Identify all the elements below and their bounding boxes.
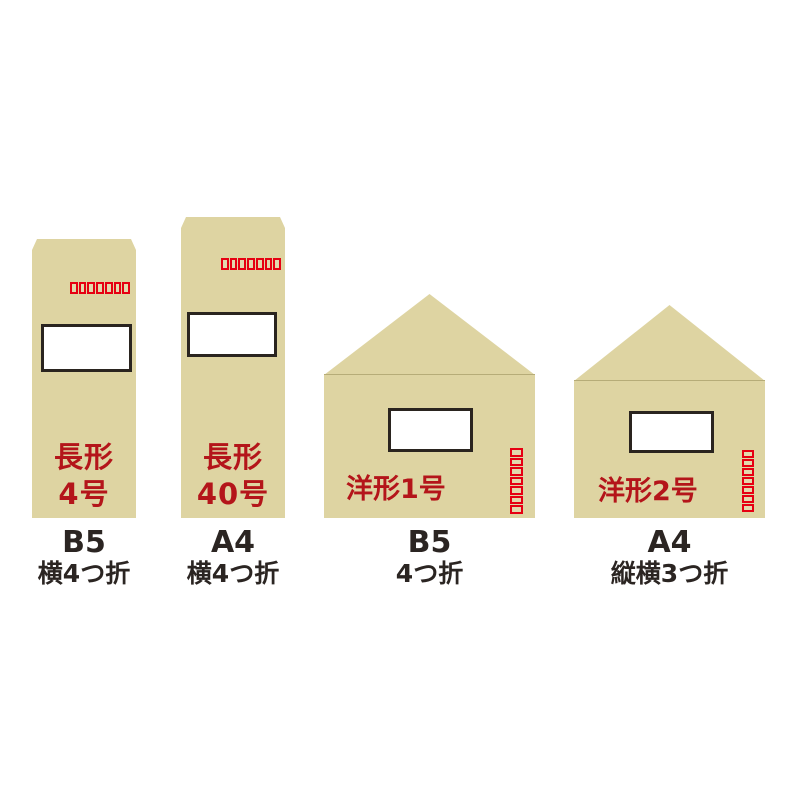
caption-paper-size: A4	[574, 528, 765, 558]
envelope-nagagata-40: 長形 40号	[181, 217, 285, 518]
postal-code-boxes-icon	[70, 282, 130, 294]
envelope-name-label: 洋形2号	[598, 478, 698, 505]
envelope-name-line1: 長形	[181, 439, 285, 476]
caption-fold-type: 横4つ折	[181, 559, 285, 588]
address-window	[41, 324, 132, 372]
envelope-flap-triangle	[324, 294, 535, 375]
envelope-name-label: 長形 40号	[181, 439, 285, 513]
caption-yougata-2: A4 縦横3つ折	[574, 528, 765, 588]
envelope-name-line1: 長形	[32, 439, 136, 476]
caption-paper-size: B5	[324, 528, 535, 558]
caption-paper-size: A4	[181, 528, 285, 558]
envelope-yougata-2: 洋形2号	[574, 380, 765, 518]
postal-code-boxes-icon	[221, 258, 281, 270]
envelope-name-line2: 4号	[32, 476, 136, 513]
caption-fold-type: 横4つ折	[32, 559, 136, 588]
envelope-name-label: 洋形1号	[346, 476, 446, 503]
caption-fold-type: 縦横3つ折	[574, 559, 765, 588]
envelope-size-diagram: 長形 4号 長形 40号 洋形1号 洋形2号 B5 横4つ折	[0, 0, 800, 800]
caption-fold-type: 4つ折	[324, 559, 535, 588]
envelope-name-line2: 40号	[181, 476, 285, 513]
address-window	[629, 411, 714, 453]
caption-nagagata-40: A4 横4つ折	[181, 528, 285, 588]
caption-yougata-1: B5 4つ折	[324, 528, 535, 588]
caption-nagagata-4: B5 横4つ折	[32, 528, 136, 588]
postal-code-boxes-icon	[510, 448, 523, 514]
caption-paper-size: B5	[32, 528, 136, 558]
envelope-nagagata-4: 長形 4号	[32, 239, 136, 518]
address-window	[388, 408, 473, 452]
envelope-flap-triangle	[574, 305, 765, 381]
envelope-yougata-1: 洋形1号	[324, 374, 535, 518]
postal-code-boxes-icon	[742, 450, 754, 512]
address-window	[187, 312, 277, 357]
envelope-name-label: 長形 4号	[32, 439, 136, 513]
